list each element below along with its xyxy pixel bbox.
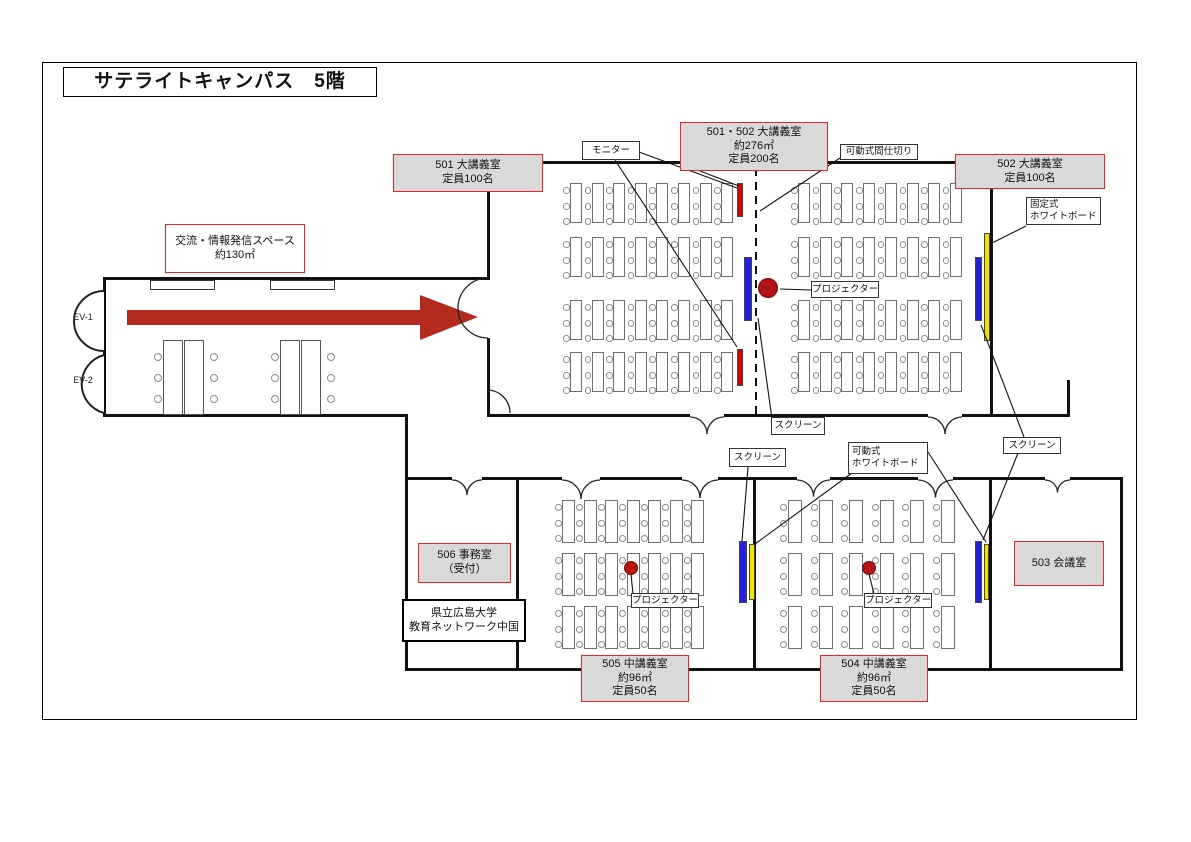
tag-fixed-whiteboard-text: ホワイトボード bbox=[1030, 211, 1100, 223]
tag-movable-whiteboard: 可動式ホワイトボード bbox=[848, 442, 928, 474]
ev2-label-text: EV-2 bbox=[66, 375, 100, 386]
open-space-label: 交流・情報発信スペース約130㎡ bbox=[165, 224, 305, 273]
room-label-504-text: 504 中講義室 bbox=[821, 658, 927, 672]
room-label-506-text: （受付） bbox=[419, 563, 510, 577]
open-space-label-text: 約130㎡ bbox=[166, 249, 304, 263]
tag-fixed-whiteboard: 固定式ホワイトボード bbox=[1026, 197, 1101, 225]
org-label: 県立広島大学教育ネットワーク中国 bbox=[402, 599, 526, 642]
tag-fixed-whiteboard-text: 固定式 bbox=[1030, 199, 1100, 211]
tag-screen-505-text: スクリーン bbox=[730, 452, 785, 464]
open-space-label-text: 交流・情報発信スペース bbox=[166, 235, 304, 249]
org-label-text: 教育ネットワーク中国 bbox=[404, 621, 524, 635]
tag-projector-504-text: プロジェクター bbox=[865, 595, 931, 607]
room-label-505-text: 約96㎡ bbox=[582, 672, 688, 686]
room-label-501-502-text: 定員200名 bbox=[681, 153, 827, 167]
tag-projector-505: プロジェクター bbox=[631, 593, 699, 608]
tag-movable-partition-text: 可動式間仕切り bbox=[841, 146, 917, 158]
room-label-504-text: 約96㎡ bbox=[821, 672, 927, 686]
floor-plan-page: サテライトキャンパス 5階501・502 大講義室約276㎡定員200名501 … bbox=[0, 0, 1191, 842]
ev1-label-text: EV-1 bbox=[66, 312, 100, 323]
room-label-504-text: 定員50名 bbox=[821, 685, 927, 699]
tag-movable-partition: 可動式間仕切り bbox=[840, 144, 918, 160]
tag-screen-505: スクリーン bbox=[729, 448, 786, 467]
page-title: サテライトキャンパス 5階 bbox=[63, 67, 377, 97]
ev2-label: EV-2 bbox=[66, 375, 100, 387]
tag-movable-whiteboard-text: 可動式 bbox=[852, 446, 927, 458]
room-label-503-text: 503 会議室 bbox=[1015, 557, 1103, 571]
tag-projector-main-text: プロジェクター bbox=[812, 284, 878, 296]
tag-projector-main: プロジェクター bbox=[811, 281, 879, 298]
room-label-505-text: 505 中講義室 bbox=[582, 658, 688, 672]
floor-plan-label-layer: サテライトキャンパス 5階501・502 大講義室約276㎡定員200名501 … bbox=[0, 0, 1191, 842]
room-label-501-text: 501 大講義室 bbox=[394, 159, 542, 173]
page-title-text: サテライトキャンパス 5階 bbox=[64, 70, 376, 94]
room-label-503: 503 会議室 bbox=[1014, 541, 1104, 586]
tag-monitor: モニター bbox=[582, 141, 640, 160]
room-label-501: 501 大講義室定員100名 bbox=[393, 154, 543, 192]
tag-projector-504: プロジェクター bbox=[864, 593, 932, 608]
room-label-501-502: 501・502 大講義室約276㎡定員200名 bbox=[680, 122, 828, 171]
tag-screen-right: スクリーン bbox=[1003, 437, 1061, 454]
room-label-505-text: 定員50名 bbox=[582, 685, 688, 699]
room-label-501-text: 定員100名 bbox=[394, 173, 542, 187]
room-label-501-502-text: 約276㎡ bbox=[681, 140, 827, 154]
org-label-text: 県立広島大学 bbox=[404, 607, 524, 621]
room-label-504: 504 中講義室約96㎡定員50名 bbox=[820, 655, 928, 702]
room-label-502: 502 大講義室定員100名 bbox=[955, 154, 1105, 189]
tag-screen-main: スクリーン bbox=[771, 417, 825, 435]
room-label-501-502-text: 501・502 大講義室 bbox=[681, 126, 827, 140]
room-label-505: 505 中講義室約96㎡定員50名 bbox=[581, 655, 689, 702]
tag-movable-whiteboard-text: ホワイトボード bbox=[852, 458, 927, 470]
tag-monitor-text: モニター bbox=[583, 145, 639, 157]
room-label-502-text: 502 大講義室 bbox=[956, 158, 1104, 172]
tag-projector-505-text: プロジェクター bbox=[632, 595, 698, 607]
room-label-502-text: 定員100名 bbox=[956, 172, 1104, 186]
ev1-label: EV-1 bbox=[66, 312, 100, 324]
tag-screen-right-text: スクリーン bbox=[1004, 440, 1060, 452]
room-label-506-text: 506 事務室 bbox=[419, 549, 510, 563]
tag-screen-main-text: スクリーン bbox=[772, 420, 824, 432]
room-label-506: 506 事務室（受付） bbox=[418, 543, 511, 583]
